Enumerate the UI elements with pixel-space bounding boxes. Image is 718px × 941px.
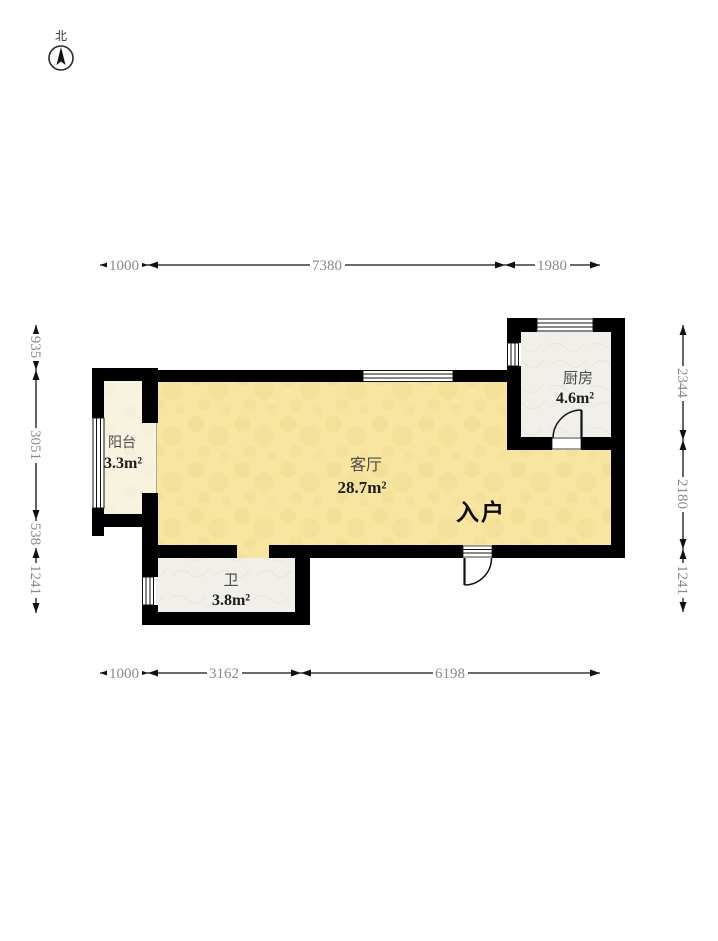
floorplan-page: 北 1000 7380 1980 1000 3162 6198: [0, 0, 718, 941]
bathroom-door-opening: [237, 545, 269, 559]
living-room-window: [363, 371, 453, 382]
balcony-window: [93, 418, 104, 508]
wall-segment: [492, 545, 625, 558]
dim-label: 935: [27, 336, 43, 359]
balcony-opening-floor: [144, 423, 157, 493]
dim-label: 3162: [209, 666, 239, 682]
balcony-area-label: 3.3m²: [104, 455, 142, 472]
living-room-area-label: 28.7m²: [337, 478, 386, 497]
dim-label: 7380: [312, 258, 342, 274]
kitchen-side-window: [508, 343, 519, 366]
wall-segment: [142, 493, 158, 539]
kitchen-top-window: [537, 319, 593, 331]
dim-label: 3051: [27, 430, 43, 460]
compass-icon: 北: [49, 29, 73, 70]
dim-label: 538: [27, 523, 43, 546]
wall-segment: [611, 318, 625, 558]
dim-label: 1241: [674, 565, 690, 595]
dimension-line-top: 1000 7380 1980: [100, 258, 600, 274]
entrance-door: [463, 546, 492, 585]
dimension-line-right: 2344 2180 1241: [674, 325, 690, 612]
living-room-name-label: 客厅: [350, 456, 382, 474]
floorplan-canvas: 北 1000 7380 1980 1000 3162 6198: [0, 0, 718, 941]
entrance-label: 入户: [456, 499, 506, 525]
bathroom-area-label: 3.8m²: [212, 592, 250, 609]
dim-label: 2180: [674, 479, 690, 509]
bathroom-name-label: 卫: [223, 573, 238, 589]
dimension-line-bottom: 1000 3162 6198: [100, 666, 600, 682]
wall-segment: [142, 370, 363, 382]
dimension-line-left: 935 3051 538 1241: [27, 325, 43, 613]
kitchen-name-label: 厨房: [563, 370, 593, 387]
wall-segment: [507, 437, 552, 450]
wall-segment: [269, 545, 463, 558]
balcony-name-label: 阳台: [108, 435, 136, 451]
compass-north-label: 北: [55, 29, 67, 43]
wall-segment: [581, 437, 611, 450]
bathroom-window: [143, 577, 154, 605]
wall-segment: [142, 612, 310, 625]
living-room-floor-right: [507, 450, 612, 545]
dim-label: 2344: [674, 368, 690, 399]
wall-segment: [142, 545, 237, 558]
wall-segment: [507, 318, 521, 343]
dim-label: 6198: [435, 666, 465, 682]
kitchen-area-label: 4.6m²: [556, 390, 594, 407]
dim-label: 1000: [109, 258, 139, 274]
dim-label: 1241: [27, 565, 43, 595]
living-room-floor: [156, 382, 507, 545]
dim-label: 1000: [109, 666, 139, 682]
dim-label: 1980: [537, 258, 567, 274]
